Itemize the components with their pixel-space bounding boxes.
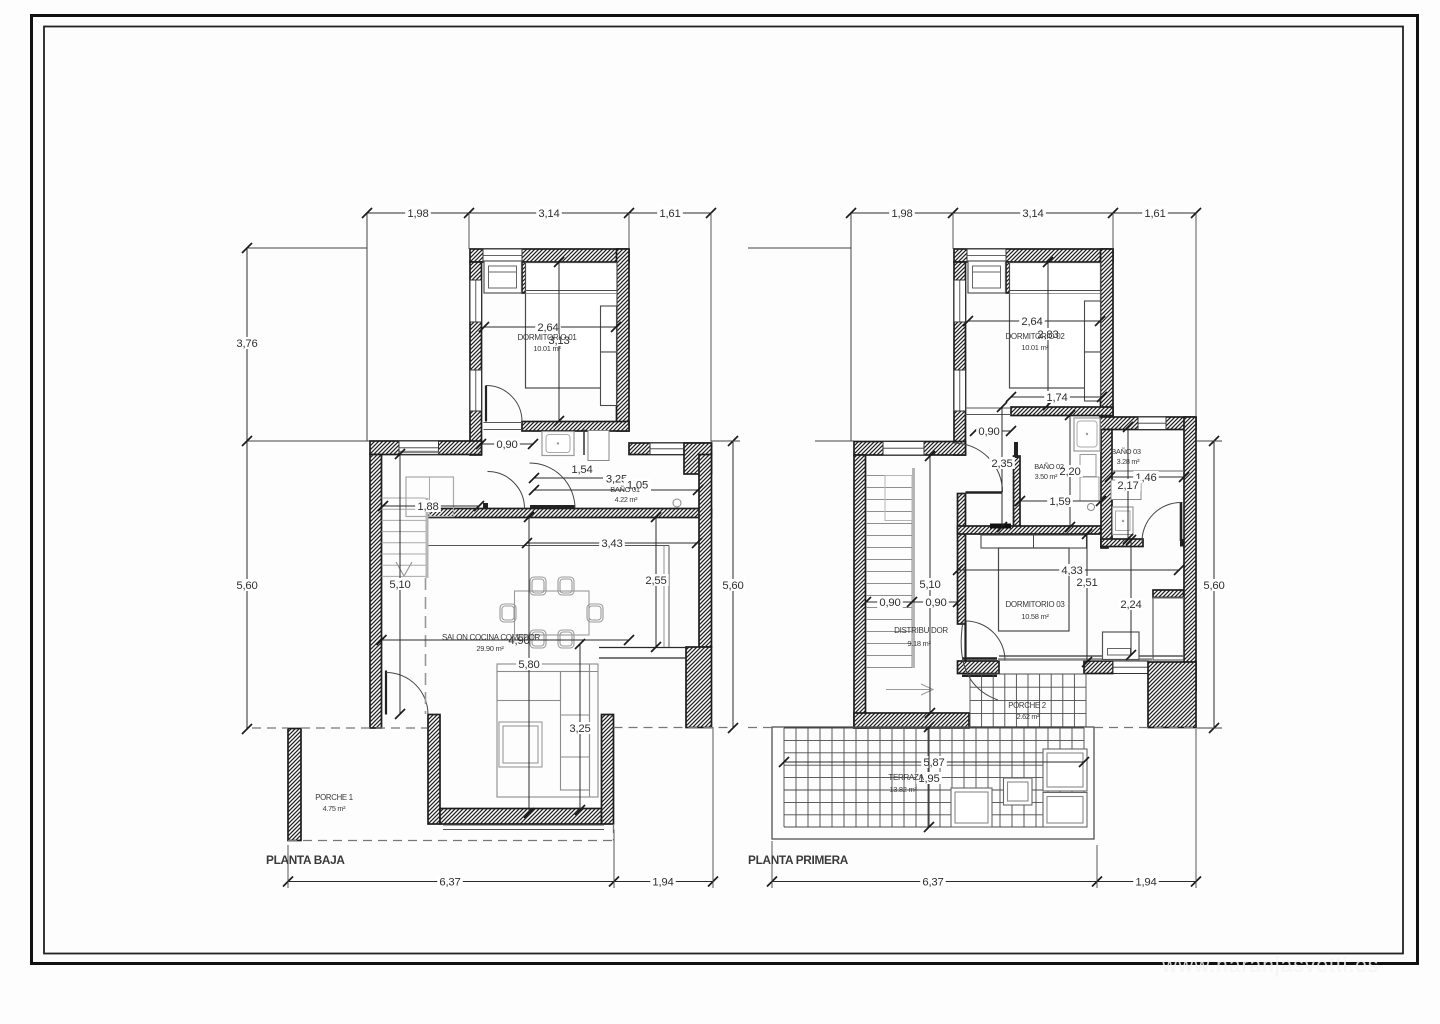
- svg-text:1,88: 1,88: [417, 501, 438, 513]
- svg-text:5,80: 5,80: [518, 659, 539, 671]
- svg-text:10.58 m²: 10.58 m²: [1021, 612, 1049, 621]
- svg-text:2,64: 2,64: [1021, 316, 1042, 328]
- svg-text:9.18 m²: 9.18 m²: [907, 639, 931, 648]
- svg-text:2,35: 2,35: [991, 458, 1012, 470]
- svg-text:BAÑO 02: BAÑO 02: [1034, 462, 1064, 471]
- svg-text:DORMITORIO 01: DORMITORIO 01: [517, 333, 577, 342]
- svg-text:3,14: 3,14: [1022, 208, 1043, 220]
- svg-text:PLANTA BAJA: PLANTA BAJA: [266, 853, 345, 867]
- svg-text:3.50 m²: 3.50 m²: [1035, 472, 1059, 481]
- svg-text:0,90: 0,90: [496, 439, 517, 451]
- svg-text:2.62 m²: 2.62 m²: [1017, 712, 1041, 721]
- svg-text:1,98: 1,98: [407, 208, 428, 220]
- svg-text:4.75 m²: 4.75 m²: [323, 804, 347, 813]
- svg-text:5,10: 5,10: [389, 579, 410, 591]
- svg-text:3.28 m²: 3.28 m²: [1117, 457, 1141, 466]
- svg-text:5,60: 5,60: [722, 580, 743, 592]
- svg-text:DISTRIBUIDOR: DISTRIBUIDOR: [894, 626, 948, 635]
- svg-text:10.01 m²: 10.01 m²: [533, 344, 561, 353]
- svg-text:4,33: 4,33: [1061, 565, 1082, 577]
- svg-text:1,98: 1,98: [891, 208, 912, 220]
- svg-text:0,90: 0,90: [978, 426, 999, 438]
- svg-text:PORCHE 2: PORCHE 2: [1008, 701, 1045, 710]
- svg-text:2,51: 2,51: [1076, 577, 1097, 589]
- svg-text:3,25: 3,25: [606, 474, 627, 486]
- svg-text:PLANTA PRIMERA: PLANTA PRIMERA: [748, 853, 849, 867]
- svg-text:1,94: 1,94: [1135, 876, 1156, 888]
- svg-text:1,54: 1,54: [571, 464, 592, 476]
- svg-text:4.22 m²: 4.22 m²: [615, 495, 639, 504]
- svg-text:DORMITORIO 02: DORMITORIO 02: [1005, 332, 1065, 341]
- svg-text:5,60: 5,60: [1203, 580, 1224, 592]
- svg-text:3,14: 3,14: [538, 208, 559, 220]
- svg-text:10.01 m²: 10.01 m²: [1021, 343, 1049, 352]
- svg-text:6,37: 6,37: [439, 876, 460, 888]
- svg-text:2,24: 2,24: [1120, 599, 1141, 611]
- svg-text:5,87: 5,87: [923, 757, 944, 769]
- svg-text:DORMITORIO 03: DORMITORIO 03: [1005, 600, 1065, 609]
- svg-text:1,61: 1,61: [659, 208, 680, 220]
- svg-text:1,94: 1,94: [652, 876, 673, 888]
- svg-text:www.naranjasvetti.es: www.naranjasvetti.es: [1161, 954, 1379, 977]
- svg-text:3,25: 3,25: [569, 723, 590, 735]
- svg-text:TERRAZA: TERRAZA: [888, 773, 924, 782]
- svg-text:29.90 m²: 29.90 m²: [476, 644, 504, 653]
- svg-text:3,76: 3,76: [236, 338, 257, 350]
- svg-text:BAÑO 03: BAÑO 03: [1111, 447, 1141, 456]
- svg-text:3,43: 3,43: [601, 538, 622, 550]
- svg-text:1,74: 1,74: [1046, 392, 1067, 404]
- svg-text:1,61: 1,61: [1144, 208, 1165, 220]
- svg-text:2,17: 2,17: [1117, 480, 1138, 492]
- svg-text:PORCHE 1: PORCHE 1: [315, 793, 352, 802]
- svg-text:6,37: 6,37: [922, 876, 943, 888]
- svg-text:13.82 m²: 13.82 m²: [889, 785, 917, 794]
- svg-text:SALON COCINA COMEDOR: SALON COCINA COMEDOR: [442, 633, 541, 642]
- svg-text:1,59: 1,59: [1049, 496, 1070, 508]
- svg-text:BAÑO 01: BAÑO 01: [610, 485, 640, 494]
- svg-text:2,64: 2,64: [537, 322, 558, 334]
- svg-text:5,10: 5,10: [919, 579, 940, 591]
- svg-text:0,90: 0,90: [925, 597, 946, 609]
- svg-text:2,55: 2,55: [645, 575, 666, 587]
- svg-text:5,60: 5,60: [236, 580, 257, 592]
- svg-text:0,90: 0,90: [879, 597, 900, 609]
